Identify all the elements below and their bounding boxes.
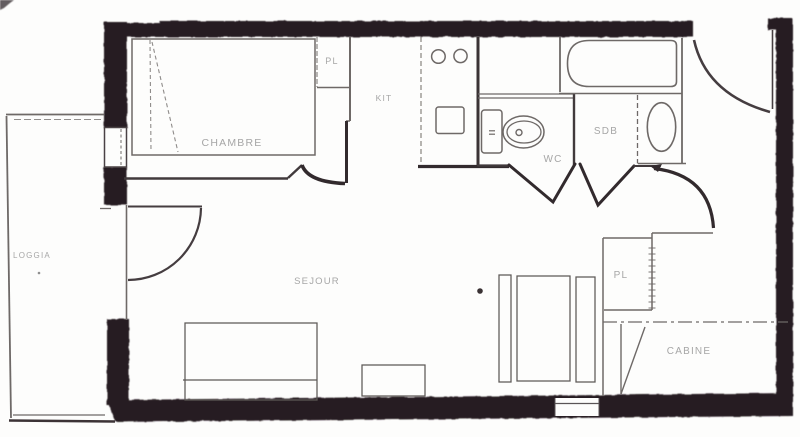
- svg-text:SEJOUR: SEJOUR: [294, 276, 340, 287]
- svg-text:LOGGIA: LOGGIA: [13, 251, 51, 260]
- svg-text:CHAMBRE: CHAMBRE: [202, 137, 263, 149]
- svg-text:WC: WC: [543, 154, 562, 165]
- svg-text:CABINE: CABINE: [667, 346, 711, 357]
- svg-text:KIT: KIT: [376, 93, 393, 103]
- svg-text:PL: PL: [325, 56, 338, 66]
- svg-text:SDB: SDB: [594, 126, 618, 137]
- svg-text:PL: PL: [614, 270, 629, 281]
